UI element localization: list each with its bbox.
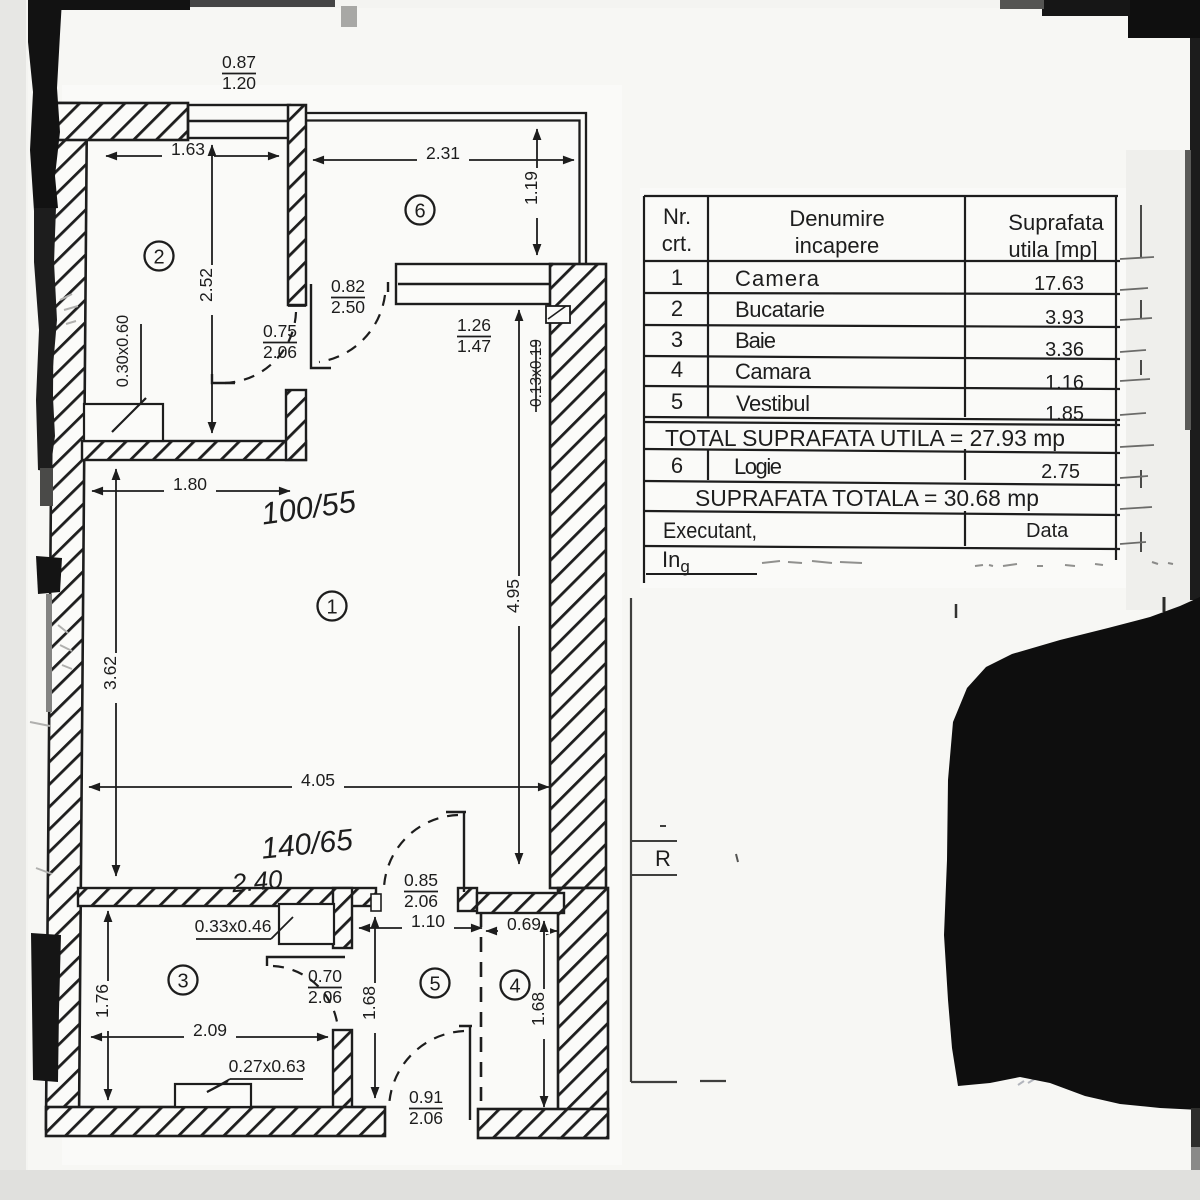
- svg-text:1.68: 1.68: [528, 992, 548, 1026]
- svg-text:crt.: crt.: [662, 231, 693, 256]
- svg-text:Camara: Camara: [735, 359, 812, 384]
- svg-text:5: 5: [671, 389, 683, 414]
- svg-text:3.62: 3.62: [100, 656, 120, 690]
- svg-text:2.50: 2.50: [331, 297, 365, 317]
- svg-text:6: 6: [671, 453, 683, 478]
- svg-text:0.91: 0.91: [409, 1087, 443, 1107]
- svg-text:0.70: 0.70: [308, 966, 342, 986]
- svg-text:1: 1: [671, 265, 683, 290]
- svg-text:SUPRAFATA TOTALA = 30.68 mp: SUPRAFATA TOTALA = 30.68 mp: [695, 485, 1039, 511]
- svg-text:Vestibul: Vestibul: [736, 391, 810, 416]
- svg-text:1.76: 1.76: [92, 984, 112, 1018]
- svg-text:1.47: 1.47: [457, 336, 491, 356]
- svg-text:1.10: 1.10: [411, 911, 445, 931]
- svg-text:Executant,: Executant,: [663, 518, 757, 543]
- svg-text:0.82: 0.82: [331, 276, 365, 296]
- svg-text:1: 1: [326, 597, 337, 619]
- svg-text:utila [mp]: utila [mp]: [1008, 237, 1097, 262]
- svg-text:Camera: Camera: [735, 266, 820, 291]
- svg-text:2.75: 2.75: [1041, 461, 1080, 483]
- svg-text:3: 3: [177, 971, 188, 993]
- svg-text:3.36: 3.36: [1045, 339, 1084, 361]
- svg-text:5: 5: [429, 974, 440, 996]
- svg-text:1.85: 1.85: [1045, 403, 1084, 425]
- svg-text:Nr.: Nr.: [663, 204, 691, 229]
- svg-text:1.20: 1.20: [222, 73, 256, 93]
- svg-text:0.75: 0.75: [263, 321, 297, 341]
- svg-text:Bucatarie: Bucatarie: [735, 297, 825, 322]
- svg-text:2.31: 2.31: [426, 143, 460, 163]
- svg-text:4: 4: [509, 976, 520, 998]
- svg-text:0.85: 0.85: [404, 870, 438, 890]
- svg-text:Logie: Logie: [734, 454, 782, 479]
- svg-text:Suprafata: Suprafata: [1008, 210, 1104, 235]
- svg-text:Denumire: Denumire: [789, 206, 884, 231]
- svg-text:4.05: 4.05: [301, 770, 335, 790]
- svg-text:TOTAL SUPRAFATA UTILA = 27.93: TOTAL SUPRAFATA UTILA = 27.93 mp: [665, 425, 1065, 451]
- svg-text:17.63: 17.63: [1034, 273, 1084, 295]
- svg-text:3.93: 3.93: [1045, 307, 1084, 329]
- svg-text:1.26: 1.26: [457, 315, 491, 335]
- svg-text:3: 3: [671, 327, 683, 352]
- svg-text:0.30x0.60: 0.30x0.60: [114, 315, 132, 387]
- svg-text:0.33x0.46: 0.33x0.46: [195, 916, 272, 936]
- svg-text:2.06: 2.06: [404, 891, 438, 911]
- svg-text:2.06: 2.06: [263, 342, 297, 362]
- svg-text:0.27x0.63: 0.27x0.63: [229, 1056, 306, 1076]
- svg-text:2.06: 2.06: [308, 987, 342, 1007]
- svg-text:1.68: 1.68: [359, 986, 379, 1020]
- svg-text:incapere: incapere: [795, 233, 879, 258]
- svg-text:4.95: 4.95: [503, 579, 523, 613]
- svg-text:2: 2: [671, 296, 683, 321]
- svg-text:2.52: 2.52: [196, 268, 216, 302]
- svg-text:0.87: 0.87: [222, 52, 256, 72]
- svg-text:Data: Data: [1026, 520, 1069, 542]
- svg-text:0.13x0.19: 0.13x0.19: [528, 339, 545, 407]
- svg-text:4: 4: [671, 357, 683, 382]
- svg-text:6: 6: [414, 201, 425, 223]
- svg-text:2.09: 2.09: [193, 1020, 227, 1040]
- svg-text:2.40: 2.40: [230, 864, 285, 898]
- svg-text:2: 2: [153, 247, 164, 269]
- svg-text:2.06: 2.06: [409, 1108, 443, 1128]
- svg-text:R: R: [655, 846, 671, 871]
- svg-text:Baie: Baie: [735, 328, 776, 353]
- svg-text:0.69: 0.69: [507, 914, 541, 934]
- svg-text:1.63: 1.63: [171, 139, 205, 159]
- svg-text:1.16: 1.16: [1045, 372, 1084, 394]
- svg-text:1.80: 1.80: [173, 474, 207, 494]
- svg-text:1.19: 1.19: [521, 171, 541, 205]
